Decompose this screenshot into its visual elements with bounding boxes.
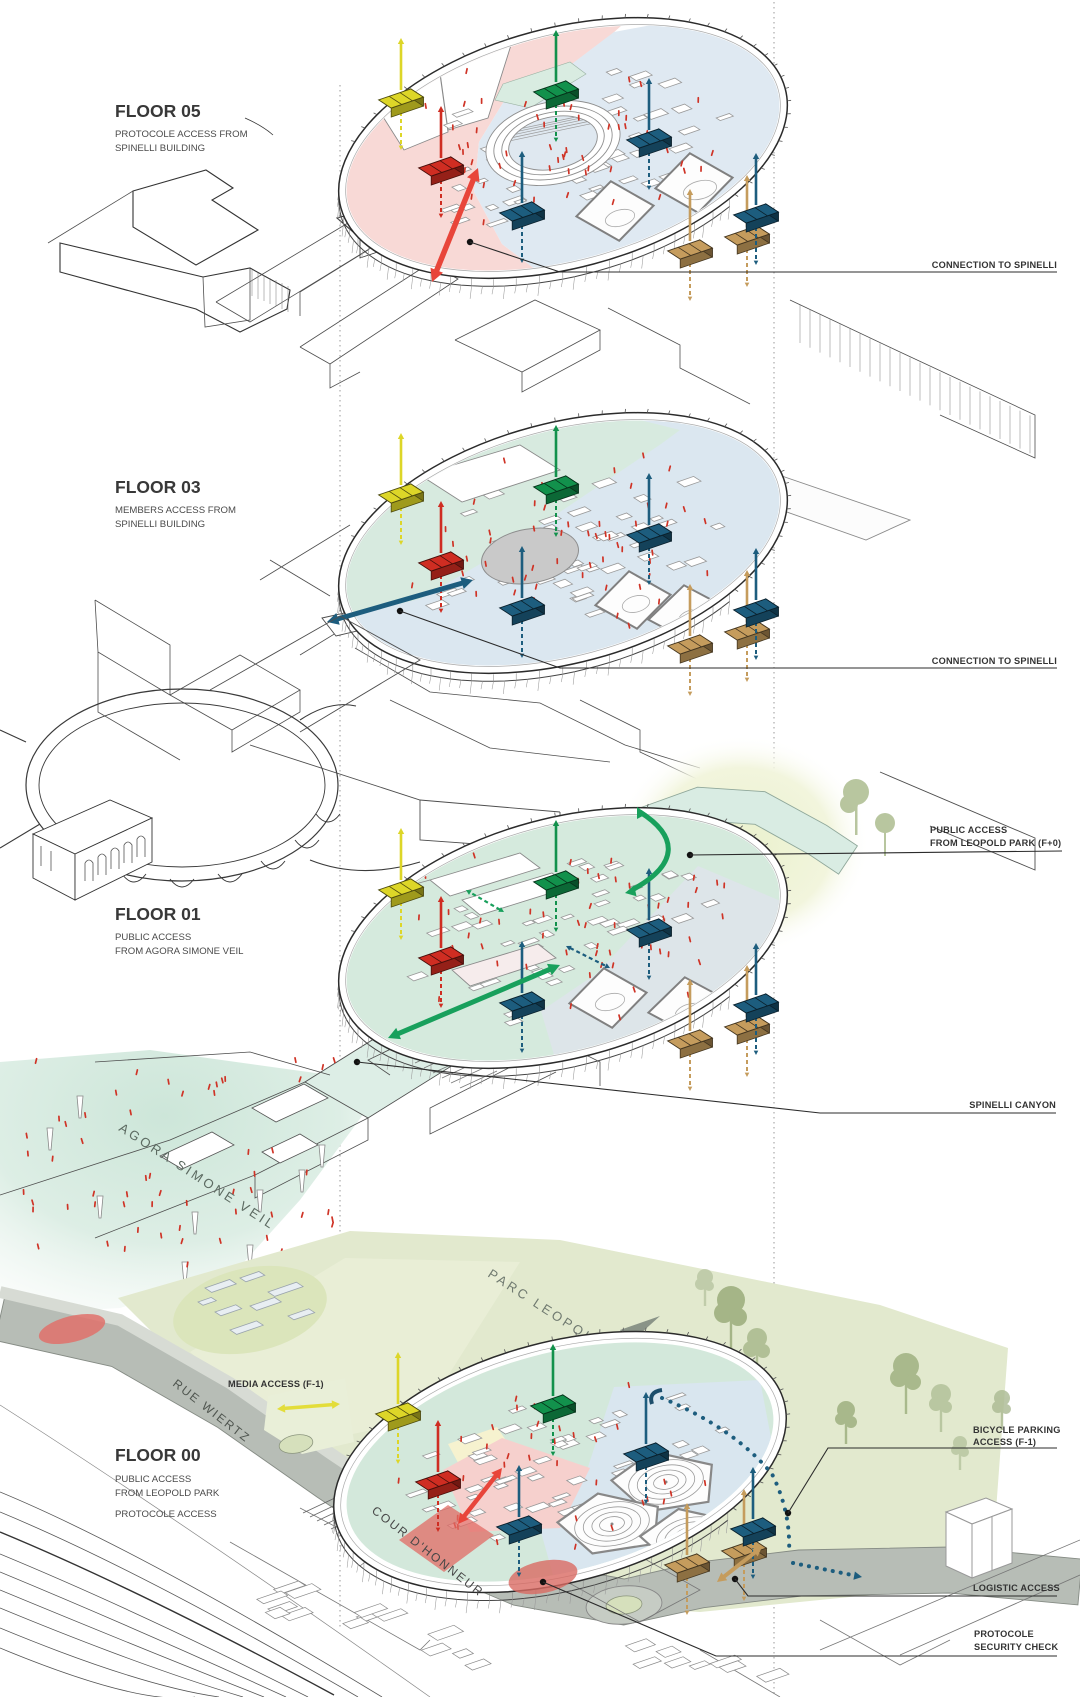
svg-text:PUBLIC ACCESS: PUBLIC ACCESS xyxy=(115,932,191,943)
svg-text:PROTOCOLE: PROTOCOLE xyxy=(974,1629,1034,1639)
svg-text:MEMBERS ACCESS FROM: MEMBERS ACCESS FROM xyxy=(115,505,236,516)
svg-text:MEDIA ACCESS (F-1): MEDIA ACCESS (F-1) xyxy=(228,1379,324,1389)
svg-text:CONNECTION TO SPINELLI: CONNECTION TO SPINELLI xyxy=(932,656,1057,666)
svg-text:LOGISTIC ACCESS: LOGISTIC ACCESS xyxy=(973,1583,1060,1593)
svg-text:FROM LEOPOLD PARK (F+0): FROM LEOPOLD PARK (F+0) xyxy=(930,838,1061,848)
svg-text:FLOOR 01: FLOOR 01 xyxy=(115,904,201,924)
svg-text:SPINELLI CANYON: SPINELLI CANYON xyxy=(969,1100,1056,1110)
svg-text:PUBLIC ACCESS: PUBLIC ACCESS xyxy=(115,1474,191,1485)
svg-text:FLOOR 03: FLOOR 03 xyxy=(115,477,201,497)
svg-text:CONNECTION TO SPINELLI: CONNECTION TO SPINELLI xyxy=(932,260,1057,270)
svg-text:PROTOCOLE ACCESS: PROTOCOLE ACCESS xyxy=(115,1509,217,1520)
svg-text:BICYCLE PARKING: BICYCLE PARKING xyxy=(973,1425,1061,1435)
svg-text:PUBLIC ACCESS: PUBLIC ACCESS xyxy=(930,825,1007,835)
svg-text:FLOOR 05: FLOOR 05 xyxy=(115,101,201,121)
svg-text:ACCESS (F-1): ACCESS (F-1) xyxy=(973,1437,1036,1447)
svg-text:SPINELLI BUILDING: SPINELLI BUILDING xyxy=(115,519,205,530)
svg-text:FLOOR 00: FLOOR 00 xyxy=(115,1445,201,1465)
svg-text:SECURITY CHECK: SECURITY CHECK xyxy=(974,1642,1058,1652)
svg-text:SPINELLI BUILDING: SPINELLI BUILDING xyxy=(115,143,205,154)
svg-text:FROM LEOPOLD PARK: FROM LEOPOLD PARK xyxy=(115,1488,220,1499)
svg-text:PROTOCOLE ACCESS FROM: PROTOCOLE ACCESS FROM xyxy=(115,129,248,140)
svg-text:FROM AGORA SIMONE VEIL: FROM AGORA SIMONE VEIL xyxy=(115,946,244,957)
